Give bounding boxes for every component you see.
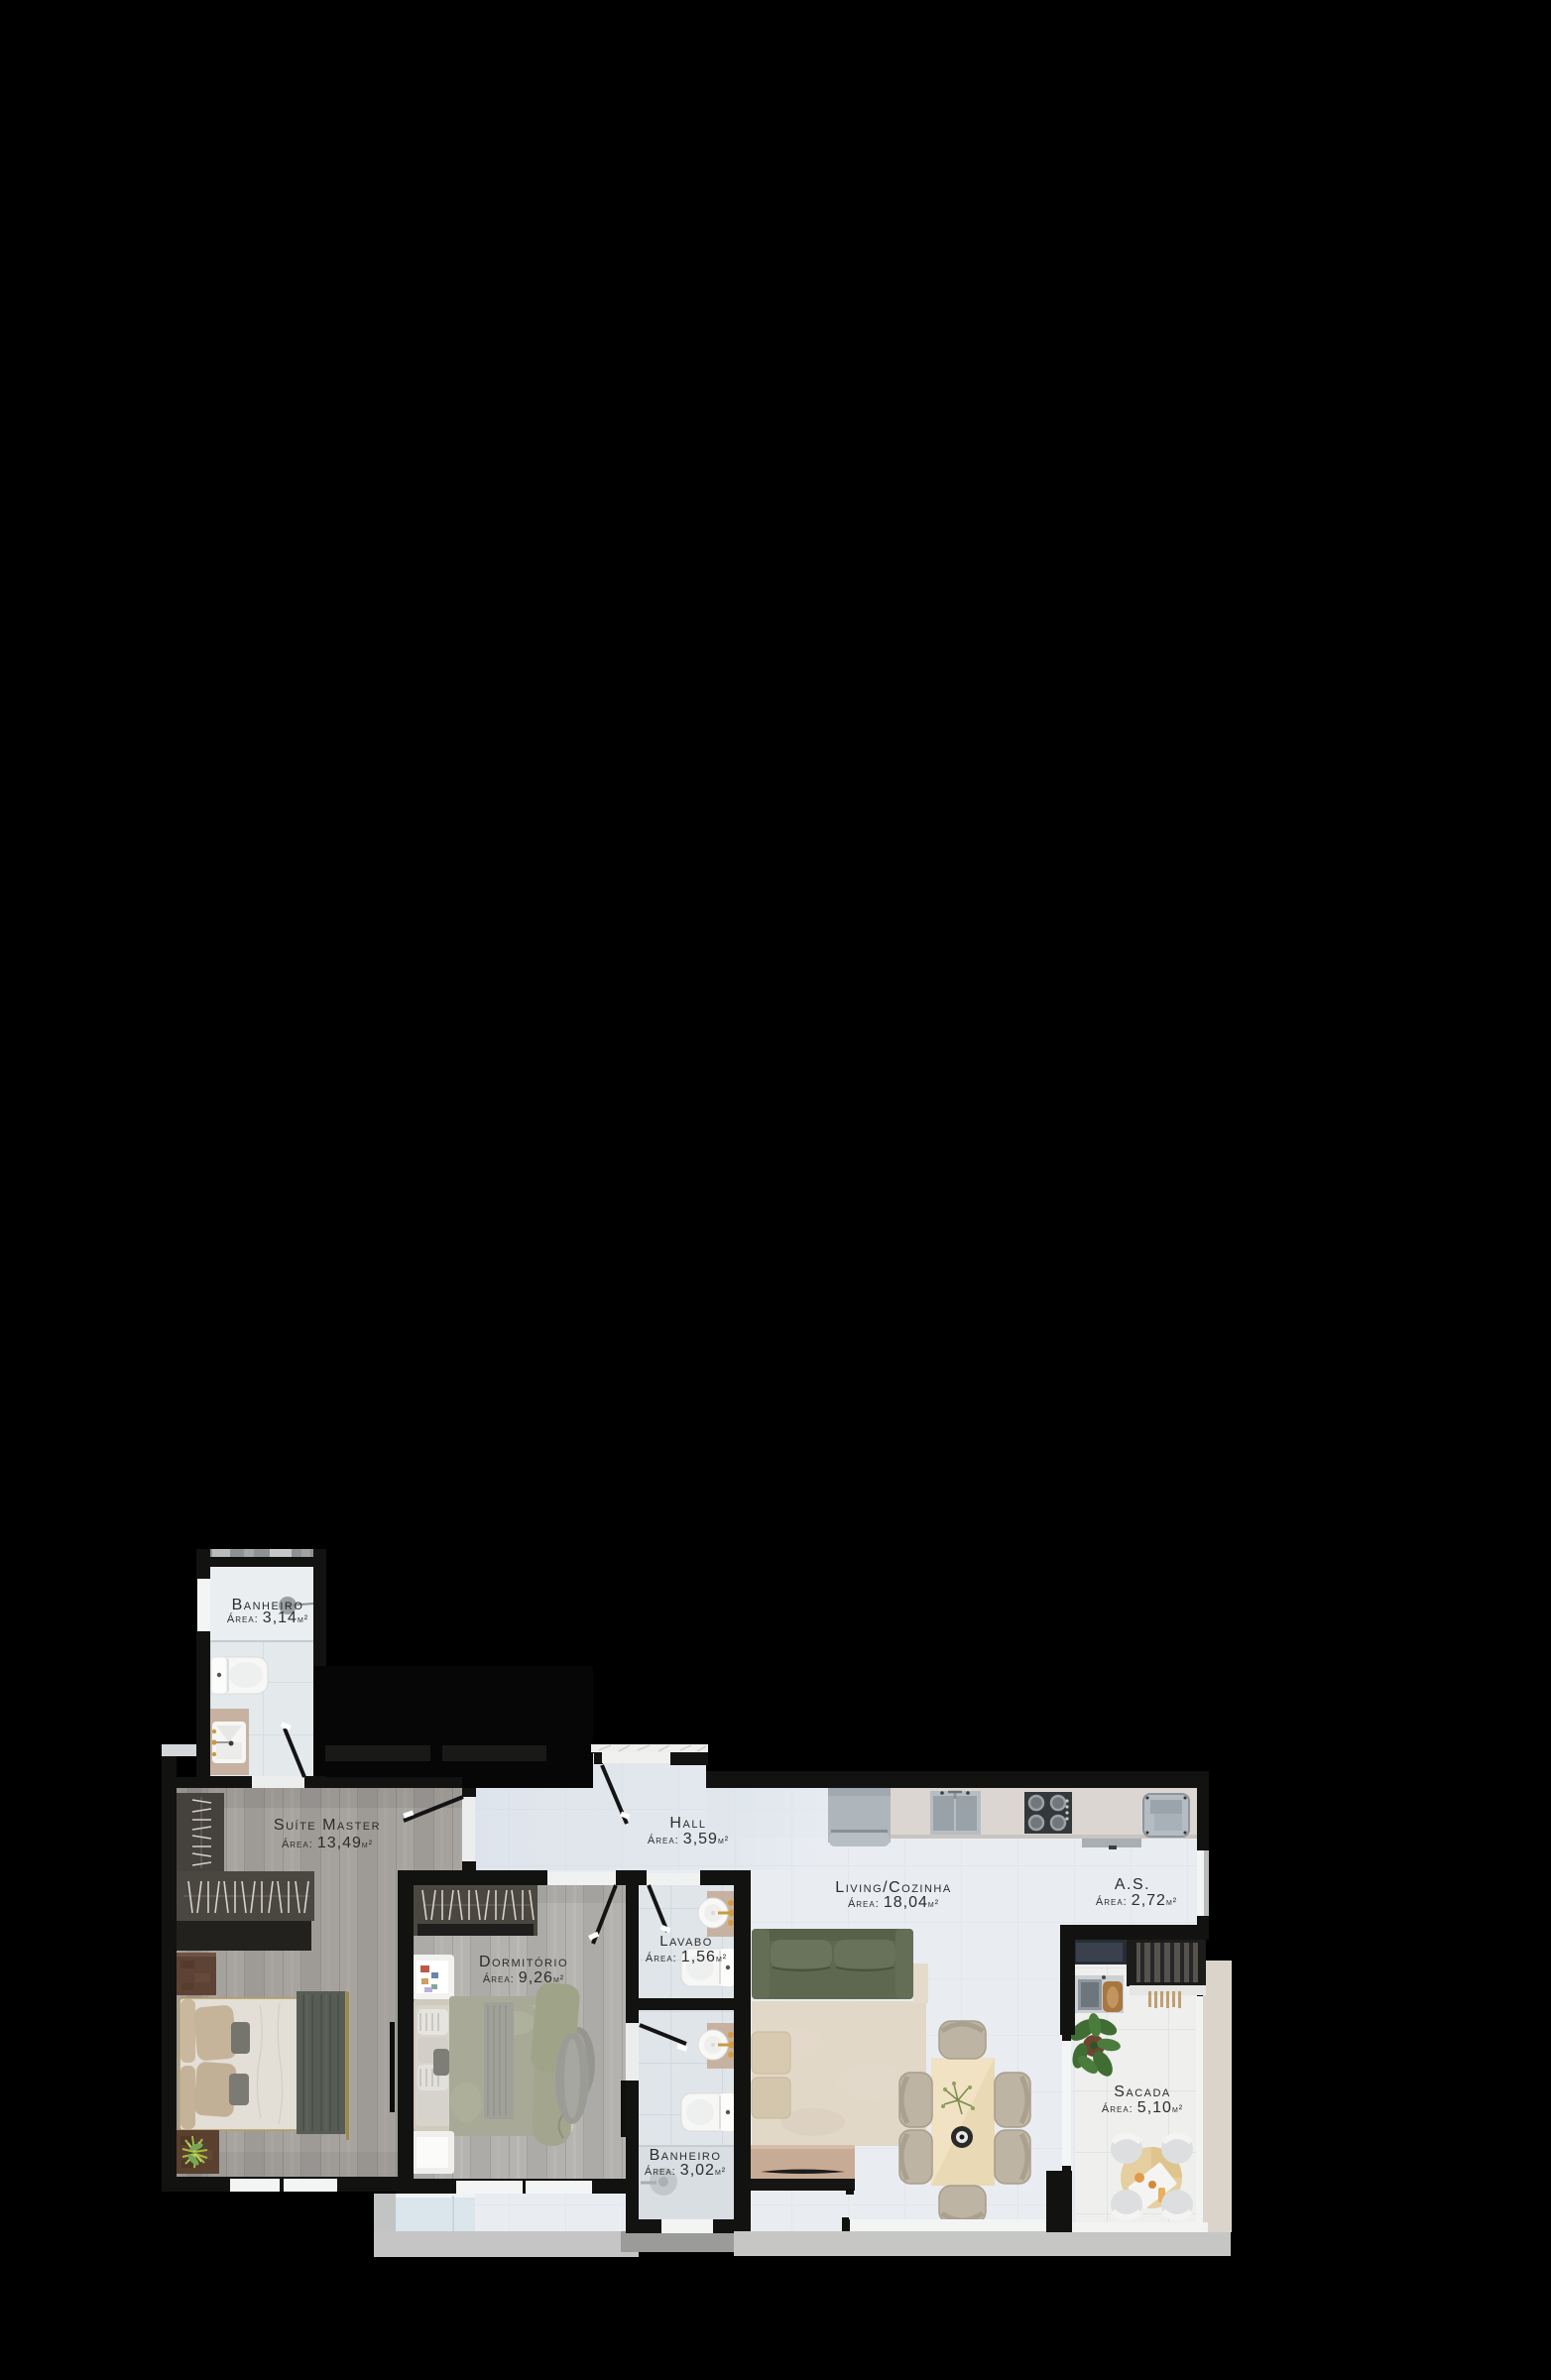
svg-text:Hall: Hall	[669, 1815, 706, 1832]
svg-text:A.S.: A.S.	[1115, 1876, 1150, 1893]
svg-text:Suíte Master: Suíte Master	[274, 1817, 381, 1834]
svg-text:Dormitório: Dormitório	[479, 1954, 568, 1970]
svg-text:Lavabo: Lavabo	[659, 1933, 713, 1950]
svg-text:Sacada: Sacada	[1114, 2083, 1171, 2100]
